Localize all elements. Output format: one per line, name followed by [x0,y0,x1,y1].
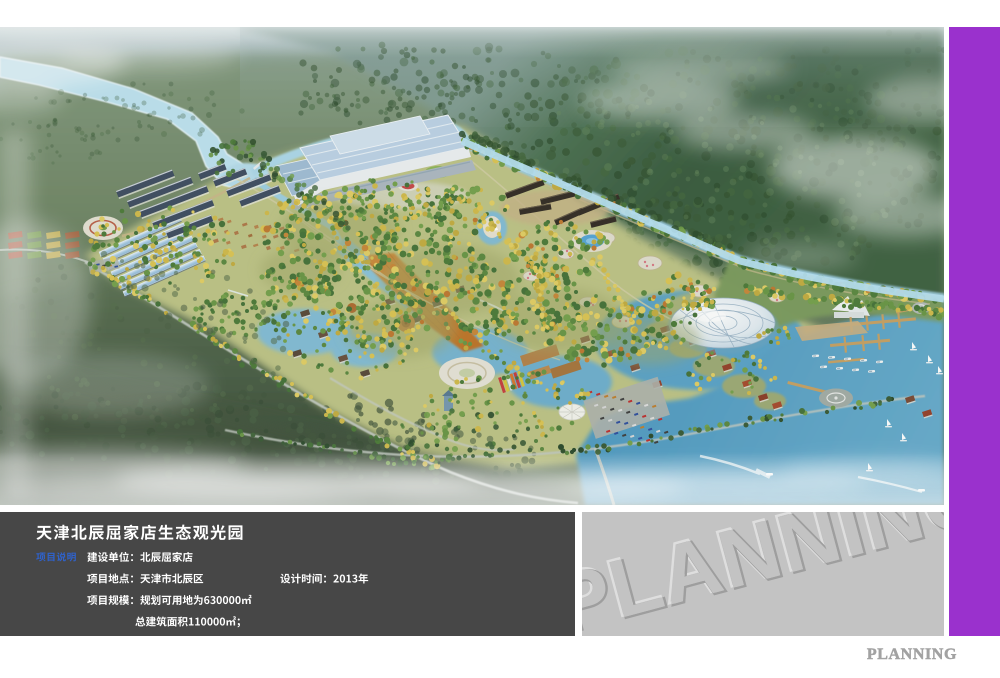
svg-text:PLANNING: PLANNING [867,646,957,663]
